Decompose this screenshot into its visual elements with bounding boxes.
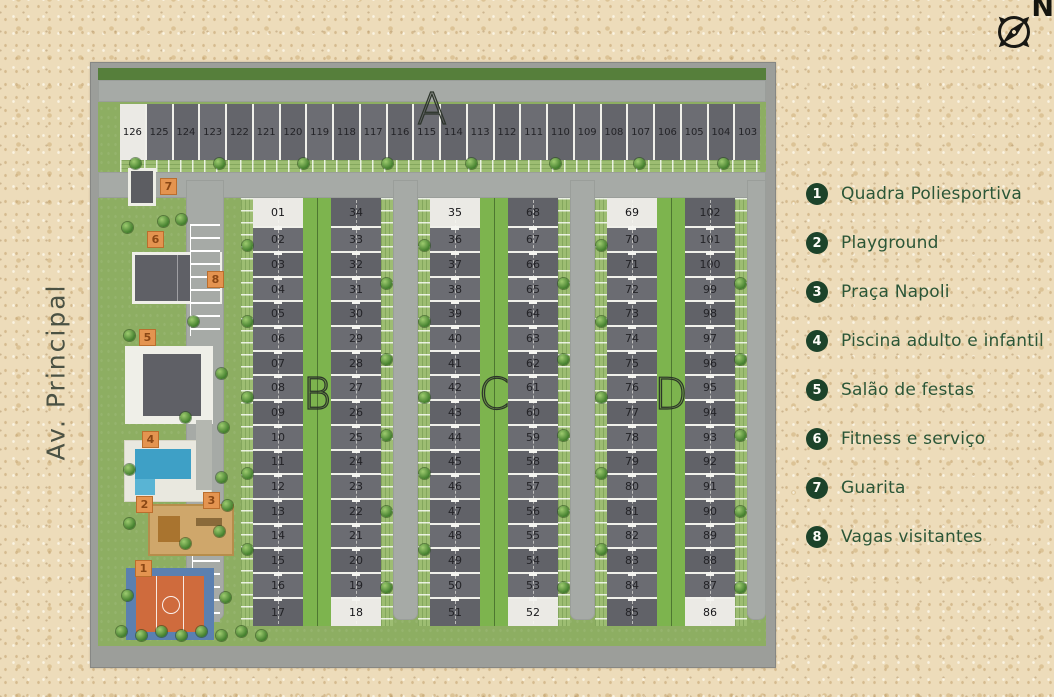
legend-item-5: 5Salão de festas — [806, 379, 1044, 401]
lot-82: 82 — [607, 523, 657, 548]
tree-icon — [419, 240, 430, 251]
compass: N — [988, 2, 1054, 64]
lot-100: 100 — [685, 251, 735, 276]
lot-01: 01 — [253, 198, 303, 226]
street-label: Av. Principal — [42, 284, 71, 461]
block-label: C — [479, 373, 510, 417]
lot-54: 54 — [508, 547, 558, 572]
tree-icon — [596, 240, 607, 251]
lot-51: 51 — [430, 597, 480, 626]
amenity-badge-2: 2 — [136, 496, 153, 513]
lot-37: 37 — [430, 251, 480, 276]
lot-70: 70 — [607, 226, 657, 251]
lot-88: 88 — [685, 547, 735, 572]
lot-52: 52 — [508, 597, 558, 626]
lot-93: 93 — [685, 424, 735, 449]
legend: 1Quadra Poliesportiva2Playground3Praça N… — [806, 183, 1044, 548]
lot-95: 95 — [685, 374, 735, 399]
lot-column-right: 1021011009998979695949392919089888786 — [685, 198, 735, 626]
legend-item-4: 4Piscina adulto e infantil — [806, 330, 1044, 352]
tree-icon — [298, 158, 309, 169]
tree-icon — [735, 430, 746, 441]
lot-49: 49 — [430, 547, 480, 572]
legend-label: Playground — [841, 233, 939, 253]
tree-icon — [596, 468, 607, 479]
amenity-badge-7: 7 — [160, 178, 177, 195]
tree-icon — [124, 464, 135, 475]
lot-30: 30 — [331, 300, 381, 325]
block-green-strip: D — [657, 198, 685, 626]
lot-50: 50 — [430, 572, 480, 597]
parking-hatch — [735, 198, 747, 626]
legend-item-6: 6Fitness e serviço — [806, 428, 1044, 450]
tree-icon — [124, 518, 135, 529]
amenity-badge-4: 4 — [142, 431, 159, 448]
lot-16: 16 — [253, 572, 303, 597]
lot-72: 72 — [607, 276, 657, 301]
lot-column-right: 3433323130292827262524232221201918 — [331, 198, 381, 626]
legend-label: Salão de festas — [841, 380, 974, 400]
tree-icon — [718, 158, 729, 169]
amenity-badge-5: 5 — [139, 329, 156, 346]
lot-07: 07 — [253, 350, 303, 375]
lot-12: 12 — [253, 473, 303, 498]
lot-55: 55 — [508, 523, 558, 548]
legend-label: Praça Napoli — [841, 282, 950, 302]
tree-icon — [550, 158, 561, 169]
tree-icon — [214, 526, 225, 537]
lot-38: 38 — [430, 276, 480, 301]
tree-icon — [466, 158, 477, 169]
lot-53: 53 — [508, 572, 558, 597]
lot-67: 67 — [508, 226, 558, 251]
lot-10: 10 — [253, 424, 303, 449]
parking-hatch — [558, 198, 570, 626]
lot-84: 84 — [607, 572, 657, 597]
legend-item-3: 3Praça Napoli — [806, 281, 1044, 303]
tree-icon — [242, 468, 253, 479]
lot-03: 03 — [253, 251, 303, 276]
tree-icon — [130, 158, 141, 169]
tree-icon — [735, 278, 746, 289]
legend-item-1: 1Quadra Poliesportiva — [806, 183, 1044, 205]
tree-icon — [256, 630, 267, 641]
legend-items: 1Quadra Poliesportiva2Playground3Praça N… — [806, 183, 1044, 548]
lot-34: 34 — [331, 198, 381, 226]
legend-number-badge: 6 — [806, 428, 828, 450]
tree-icon — [419, 316, 430, 327]
block-C: 3536373839404142434445464748495051C68676… — [418, 198, 570, 626]
legend-label: Quadra Poliesportiva — [841, 184, 1022, 204]
lot-44: 44 — [430, 424, 480, 449]
lot-48: 48 — [430, 523, 480, 548]
lot-14: 14 — [253, 523, 303, 548]
lot-27: 27 — [331, 374, 381, 399]
legend-label: Vagas visitantes — [841, 527, 983, 547]
lot-04: 04 — [253, 276, 303, 301]
lot-56: 56 — [508, 498, 558, 523]
lot-91: 91 — [685, 473, 735, 498]
tree-icon — [242, 240, 253, 251]
lot-83: 83 — [607, 547, 657, 572]
tree-icon — [735, 506, 746, 517]
lot-101: 101 — [685, 226, 735, 251]
lot-96: 96 — [685, 350, 735, 375]
block-green-strip: C — [480, 198, 508, 626]
tree-icon — [180, 538, 191, 549]
legend-label: Fitness e serviço — [841, 429, 985, 449]
tree-icon — [124, 330, 135, 341]
lot-64: 64 — [508, 300, 558, 325]
tree-icon — [558, 278, 569, 289]
lot-36: 36 — [430, 226, 480, 251]
tree-icon — [558, 582, 569, 593]
lot-62: 62 — [508, 350, 558, 375]
lot-32: 32 — [331, 251, 381, 276]
tree-icon — [116, 626, 127, 637]
lot-58: 58 — [508, 449, 558, 474]
legend-number-badge: 2 — [806, 232, 828, 254]
legend-number-badge: 8 — [806, 526, 828, 548]
tree-icon — [180, 412, 191, 423]
tree-icon — [381, 430, 392, 441]
lot-94: 94 — [685, 399, 735, 424]
lot-102: 102 — [685, 198, 735, 226]
tree-icon — [216, 368, 227, 379]
tree-icon — [158, 216, 169, 227]
tree-icon — [381, 506, 392, 517]
tree-icon — [136, 630, 147, 641]
legend-number-badge: 1 — [806, 183, 828, 205]
lot-20: 20 — [331, 547, 381, 572]
tree-icon — [216, 472, 227, 483]
lot-75: 75 — [607, 350, 657, 375]
legend-number-badge: 5 — [806, 379, 828, 401]
tree-icon — [596, 544, 607, 555]
lot-87: 87 — [685, 572, 735, 597]
lot-24: 24 — [331, 449, 381, 474]
lot-40: 40 — [430, 325, 480, 350]
lot-46: 46 — [430, 473, 480, 498]
lot-80: 80 — [607, 473, 657, 498]
legend-item-8: 8Vagas visitantes — [806, 526, 1044, 548]
tree-icon — [214, 158, 225, 169]
tree-icon — [634, 158, 645, 169]
lot-69: 69 — [607, 198, 657, 226]
parking-hatch — [241, 198, 253, 626]
site-plan-map: 1261251241231221211201191181171161151141… — [90, 62, 776, 668]
legend-number-badge: 7 — [806, 477, 828, 499]
lot-02: 02 — [253, 226, 303, 251]
map-area: 1261251241231221211201191181171161151141… — [98, 68, 766, 646]
tree-icon — [419, 468, 430, 479]
tree-icon — [218, 422, 229, 433]
parking-hatch — [595, 198, 607, 626]
tree-icon — [558, 430, 569, 441]
lot-57: 57 — [508, 473, 558, 498]
lot-05: 05 — [253, 300, 303, 325]
lot-74: 74 — [607, 325, 657, 350]
lot-06: 06 — [253, 325, 303, 350]
block-label: B — [303, 373, 332, 417]
lot-column-left: 6970717273747576777879808182838485 — [607, 198, 657, 626]
lot-21: 21 — [331, 523, 381, 548]
page-background: Av. Principal N 126125124123122121120119… — [0, 0, 1054, 697]
tree-icon — [381, 278, 392, 289]
lot-97: 97 — [685, 325, 735, 350]
lot-column-left: 0102030405060708091011121314151617 — [253, 198, 303, 626]
tree-icon — [242, 392, 253, 403]
tree-icon — [596, 392, 607, 403]
tree-icon — [381, 582, 392, 593]
tree-icon — [236, 626, 247, 637]
tree-icon — [176, 214, 187, 225]
lot-11: 11 — [253, 449, 303, 474]
lot-column-right: 6867666564636261605958575655545352 — [508, 198, 558, 626]
tree-icon — [558, 354, 569, 365]
lot-66: 66 — [508, 251, 558, 276]
lot-41: 41 — [430, 350, 480, 375]
lot-71: 71 — [607, 251, 657, 276]
block-a-label: A — [410, 88, 454, 132]
amenity-badge-8: 8 — [207, 271, 224, 288]
lot-89: 89 — [685, 523, 735, 548]
lot-39: 39 — [430, 300, 480, 325]
lot-09: 09 — [253, 399, 303, 424]
lot-61: 61 — [508, 374, 558, 399]
lot-33: 33 — [331, 226, 381, 251]
lot-68: 68 — [508, 198, 558, 226]
tree-icon — [220, 592, 231, 603]
amenity-badge-1: 1 — [135, 560, 152, 577]
tree-icon — [122, 590, 133, 601]
lot-81: 81 — [607, 498, 657, 523]
tree-icon — [419, 544, 430, 555]
lot-26: 26 — [331, 399, 381, 424]
legend-item-7: 7Guarita — [806, 477, 1044, 499]
lot-99: 99 — [685, 276, 735, 301]
tree-icon — [242, 316, 253, 327]
amenity-badge-3: 3 — [203, 492, 220, 509]
tree-icon — [222, 500, 233, 511]
lot-76: 76 — [607, 374, 657, 399]
tree-icon — [382, 158, 393, 169]
compass-north-label: N — [1031, 0, 1054, 23]
lot-63: 63 — [508, 325, 558, 350]
lot-65: 65 — [508, 276, 558, 301]
lot-73: 73 — [607, 300, 657, 325]
lot-column-left: 3536373839404142434445464748495051 — [430, 198, 480, 626]
tree-icon — [122, 222, 133, 233]
amenity-badge-6: 6 — [147, 231, 164, 248]
lot-43: 43 — [430, 399, 480, 424]
lot-79: 79 — [607, 449, 657, 474]
lot-59: 59 — [508, 424, 558, 449]
lot-86: 86 — [685, 597, 735, 626]
block-B: 0102030405060708091011121314151617B34333… — [241, 198, 393, 626]
tree-icon — [156, 626, 167, 637]
lot-28: 28 — [331, 350, 381, 375]
lot-25: 25 — [331, 424, 381, 449]
tree-icon — [735, 354, 746, 365]
tree-icon — [596, 316, 607, 327]
lot-60: 60 — [508, 399, 558, 424]
lot-85: 85 — [607, 597, 657, 626]
tree-icon — [188, 316, 199, 327]
lot-15: 15 — [253, 547, 303, 572]
lot-90: 90 — [685, 498, 735, 523]
lot-47: 47 — [430, 498, 480, 523]
lot-13: 13 — [253, 498, 303, 523]
residential-blocks: 0102030405060708091011121314151617B34333… — [98, 68, 766, 646]
lot-35: 35 — [430, 198, 480, 226]
lot-78: 78 — [607, 424, 657, 449]
lot-98: 98 — [685, 300, 735, 325]
tree-icon — [381, 354, 392, 365]
legend-item-2: 2Playground — [806, 232, 1044, 254]
lot-29: 29 — [331, 325, 381, 350]
block-label: D — [654, 373, 688, 417]
lot-17: 17 — [253, 597, 303, 626]
lot-22: 22 — [331, 498, 381, 523]
tree-icon — [242, 544, 253, 555]
block-D: 6970717273747576777879808182838485D10210… — [595, 198, 747, 626]
legend-number-badge: 4 — [806, 330, 828, 352]
lot-08: 08 — [253, 374, 303, 399]
tree-icon — [558, 506, 569, 517]
parking-hatch — [418, 198, 430, 626]
tree-icon — [216, 630, 227, 641]
legend-label: Piscina adulto e infantil — [841, 331, 1044, 351]
lot-45: 45 — [430, 449, 480, 474]
lot-18: 18 — [331, 597, 381, 626]
lot-92: 92 — [685, 449, 735, 474]
block-green-strip: B — [303, 198, 331, 626]
tree-icon — [735, 582, 746, 593]
lot-42: 42 — [430, 374, 480, 399]
lot-31: 31 — [331, 276, 381, 301]
lot-77: 77 — [607, 399, 657, 424]
legend-label: Guarita — [841, 478, 906, 498]
tree-icon — [196, 626, 207, 637]
lot-19: 19 — [331, 572, 381, 597]
tree-icon — [176, 630, 187, 641]
parking-hatch — [381, 198, 393, 626]
lot-23: 23 — [331, 473, 381, 498]
tree-icon — [419, 392, 430, 403]
legend-number-badge: 3 — [806, 281, 828, 303]
